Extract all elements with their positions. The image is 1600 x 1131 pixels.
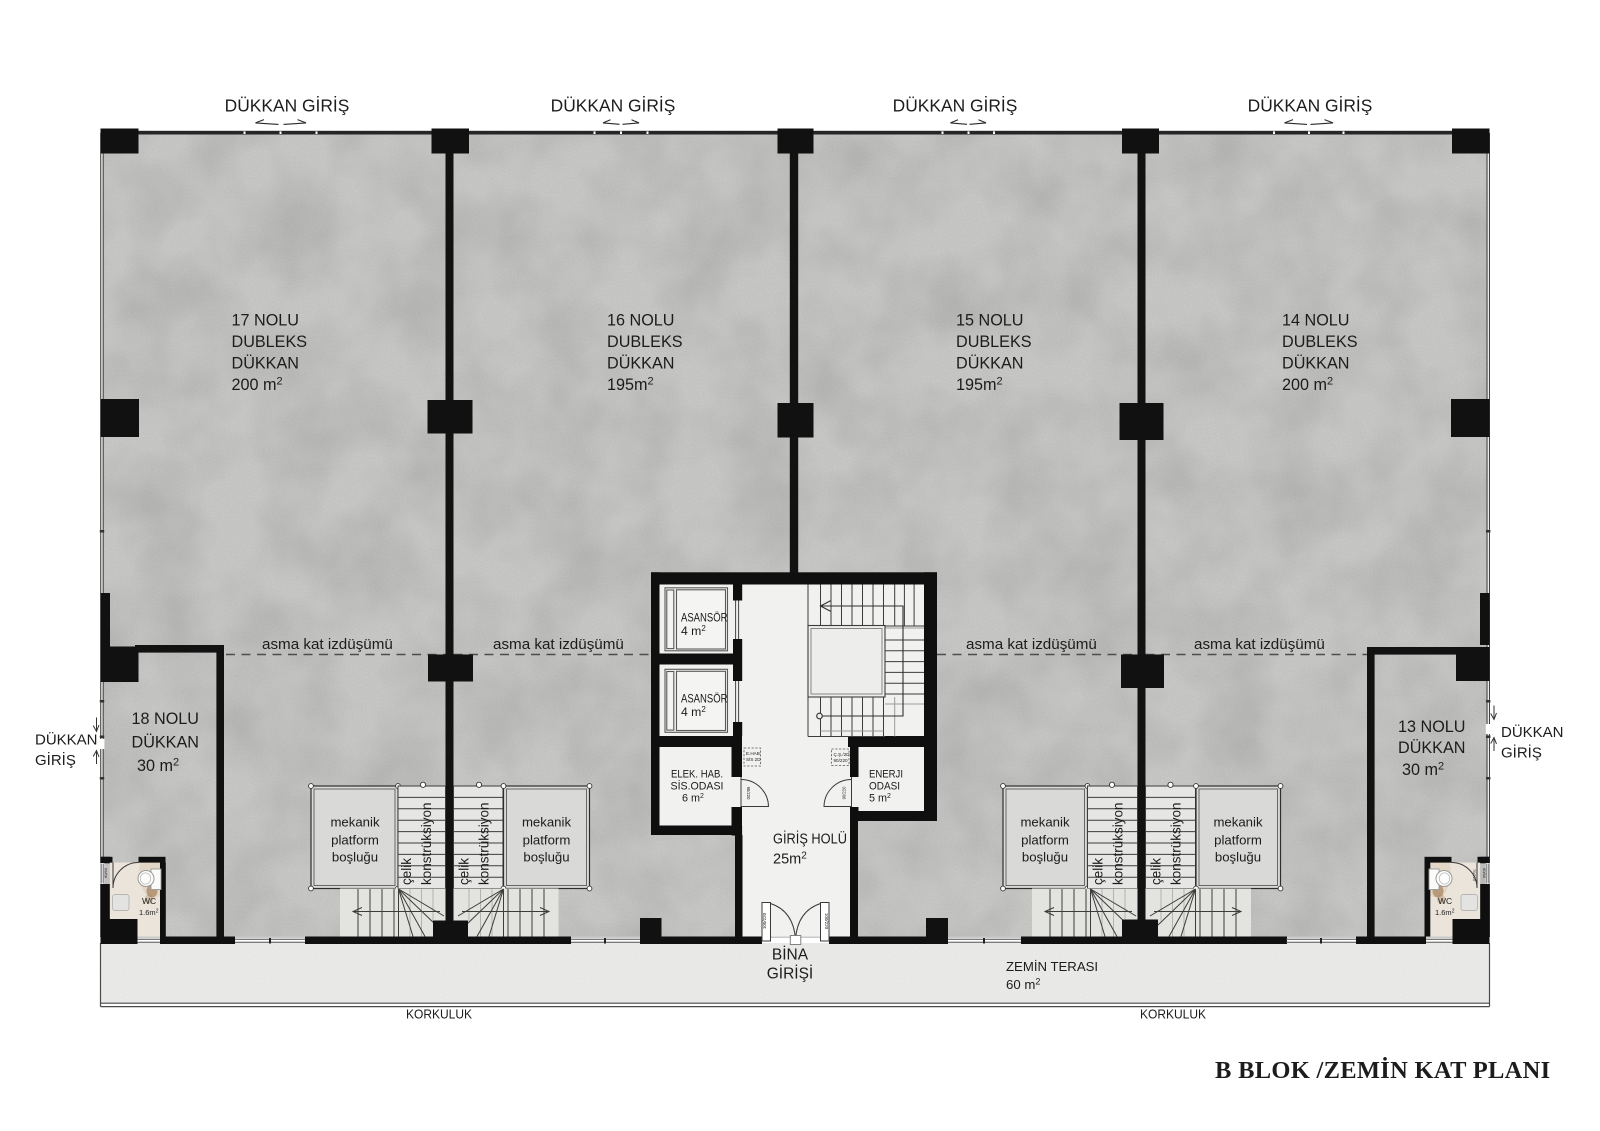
svg-text:çelik: çelik: [1149, 858, 1164, 885]
svg-text:60/90: 60/90: [1482, 868, 1487, 879]
svg-text:DÜKKAN: DÜKKAN: [956, 355, 1023, 373]
svg-text:B BLOK /ZEMİN KAT PLANI: B BLOK /ZEMİN KAT PLANI: [1215, 1056, 1550, 1084]
svg-text:60 m2: 60 m2: [1006, 977, 1040, 993]
svg-text:SİS.ODASI: SİS.ODASI: [671, 780, 724, 793]
svg-text:GİRİŞİ: GİRİŞİ: [767, 965, 814, 983]
svg-text:Ç.Ş./2D: Ç.Ş./2D: [834, 752, 851, 757]
svg-text:90/220: 90/220: [842, 786, 847, 799]
svg-text:WC: WC: [142, 896, 156, 906]
svg-text:DUBLEKS: DUBLEKS: [956, 333, 1032, 351]
svg-text:çelik: çelik: [1091, 858, 1106, 885]
svg-text:ELEK. HAB.: ELEK. HAB.: [671, 769, 723, 781]
svg-text:boşluğu: boşluğu: [332, 850, 378, 865]
svg-text:30 m2: 30 m2: [137, 757, 179, 776]
svg-text:ASANSÖR: ASANSÖR: [681, 692, 728, 706]
svg-text:KORKULUK: KORKULUK: [406, 1007, 472, 1022]
svg-text:boşluğu: boşluğu: [1022, 850, 1068, 865]
svg-text:DÜKKAN GİRİŞ: DÜKKAN GİRİŞ: [1248, 96, 1373, 116]
svg-text:30 m2: 30 m2: [1402, 761, 1444, 780]
svg-text:17 NOLU: 17 NOLU: [232, 312, 299, 330]
svg-text:GİRİŞ: GİRİŞ: [1501, 744, 1542, 762]
svg-text:asma kat izdüşümü: asma kat izdüşümü: [262, 636, 393, 653]
svg-text:16 NOLU: 16 NOLU: [607, 312, 674, 330]
svg-text:200 m2: 200 m2: [232, 376, 283, 395]
svg-text:platform: platform: [1214, 833, 1262, 848]
svg-text:asma kat izdüşümü: asma kat izdüşümü: [966, 636, 1097, 653]
svg-text:ENERJI: ENERJI: [869, 769, 903, 781]
svg-text:195m2: 195m2: [956, 376, 1003, 395]
svg-text:DÜKKAN: DÜKKAN: [607, 355, 674, 373]
svg-text:mekanik: mekanik: [1020, 815, 1070, 830]
svg-text:mekanik: mekanik: [1213, 815, 1263, 830]
svg-text:DUBLEKS: DUBLEKS: [1282, 333, 1358, 351]
svg-text:konstrüksiyon: konstrüksiyon: [419, 802, 434, 885]
svg-text:195m2: 195m2: [607, 376, 654, 395]
svg-text:DÜKKAN GİRİŞ: DÜKKAN GİRİŞ: [551, 96, 676, 116]
svg-text:konstrüksiyon: konstrüksiyon: [1169, 802, 1184, 885]
svg-text:14 NOLU: 14 NOLU: [1282, 312, 1349, 330]
svg-text:DÜKKAN GİRİŞ: DÜKKAN GİRİŞ: [893, 96, 1018, 116]
svg-text:ZEMİN TERASI: ZEMİN TERASI: [1006, 959, 1098, 974]
svg-text:BİNA: BİNA: [772, 946, 809, 964]
svg-text:DÜKKAN GİRİŞ: DÜKKAN GİRİŞ: [225, 96, 350, 116]
svg-text:WC: WC: [1438, 896, 1452, 906]
svg-text:E.HAB: E.HAB: [746, 751, 760, 756]
svg-text:SİS 2D: SİS 2D: [746, 756, 761, 762]
svg-text:DÜKKAN: DÜKKAN: [132, 734, 199, 752]
svg-text:18 NOLU: 18 NOLU: [132, 710, 199, 728]
svg-text:platform: platform: [1021, 833, 1069, 848]
svg-text:15 NOLU: 15 NOLU: [956, 312, 1023, 330]
svg-text:mekanik: mekanik: [522, 815, 572, 830]
svg-text:boşluğu: boşluğu: [523, 850, 569, 865]
svg-text:DÜKKAN: DÜKKAN: [35, 731, 98, 749]
svg-text:90/220: 90/220: [746, 787, 751, 800]
svg-text:konstrüksiyon: konstrüksiyon: [1111, 802, 1126, 885]
svg-text:60/90: 60/90: [103, 867, 108, 878]
svg-text:70/220: 70/220: [1472, 869, 1477, 882]
svg-text:platform: platform: [331, 833, 379, 848]
svg-text:DÜKKAN: DÜKKAN: [232, 355, 299, 373]
svg-text:200 m2: 200 m2: [1282, 376, 1333, 395]
svg-text:çelik: çelik: [399, 858, 414, 885]
svg-text:90/220: 90/220: [834, 758, 848, 763]
svg-text:13 NOLU: 13 NOLU: [1398, 718, 1465, 736]
svg-text:konstrüksiyon: konstrüksiyon: [477, 802, 492, 885]
svg-text:GİRİŞ HOLÜ: GİRİŞ HOLÜ: [773, 830, 847, 848]
svg-text:ASANSÖR: ASANSÖR: [681, 611, 728, 625]
svg-text:KORKULUK: KORKULUK: [1140, 1007, 1206, 1022]
svg-text:100/220: 100/220: [824, 913, 829, 930]
svg-text:DÜKKAN: DÜKKAN: [1398, 739, 1465, 757]
svg-text:100/220: 100/220: [762, 912, 767, 929]
svg-text:asma kat izdüşümü: asma kat izdüşümü: [1194, 636, 1325, 653]
svg-text:DUBLEKS: DUBLEKS: [232, 333, 308, 351]
svg-text:DUBLEKS: DUBLEKS: [607, 333, 683, 351]
svg-text:DÜKKAN: DÜKKAN: [1282, 355, 1349, 373]
svg-text:platform: platform: [523, 833, 571, 848]
svg-text:DÜKKAN: DÜKKAN: [1501, 723, 1564, 741]
svg-text:çelik: çelik: [457, 858, 472, 885]
svg-text:ODASI: ODASI: [869, 781, 900, 793]
svg-text:mekanik: mekanik: [330, 815, 380, 830]
svg-text:asma kat izdüşümü: asma kat izdüşümü: [493, 636, 624, 653]
svg-text:boşluğu: boşluğu: [1215, 850, 1261, 865]
svg-text:GİRİŞ: GİRİŞ: [35, 751, 76, 769]
